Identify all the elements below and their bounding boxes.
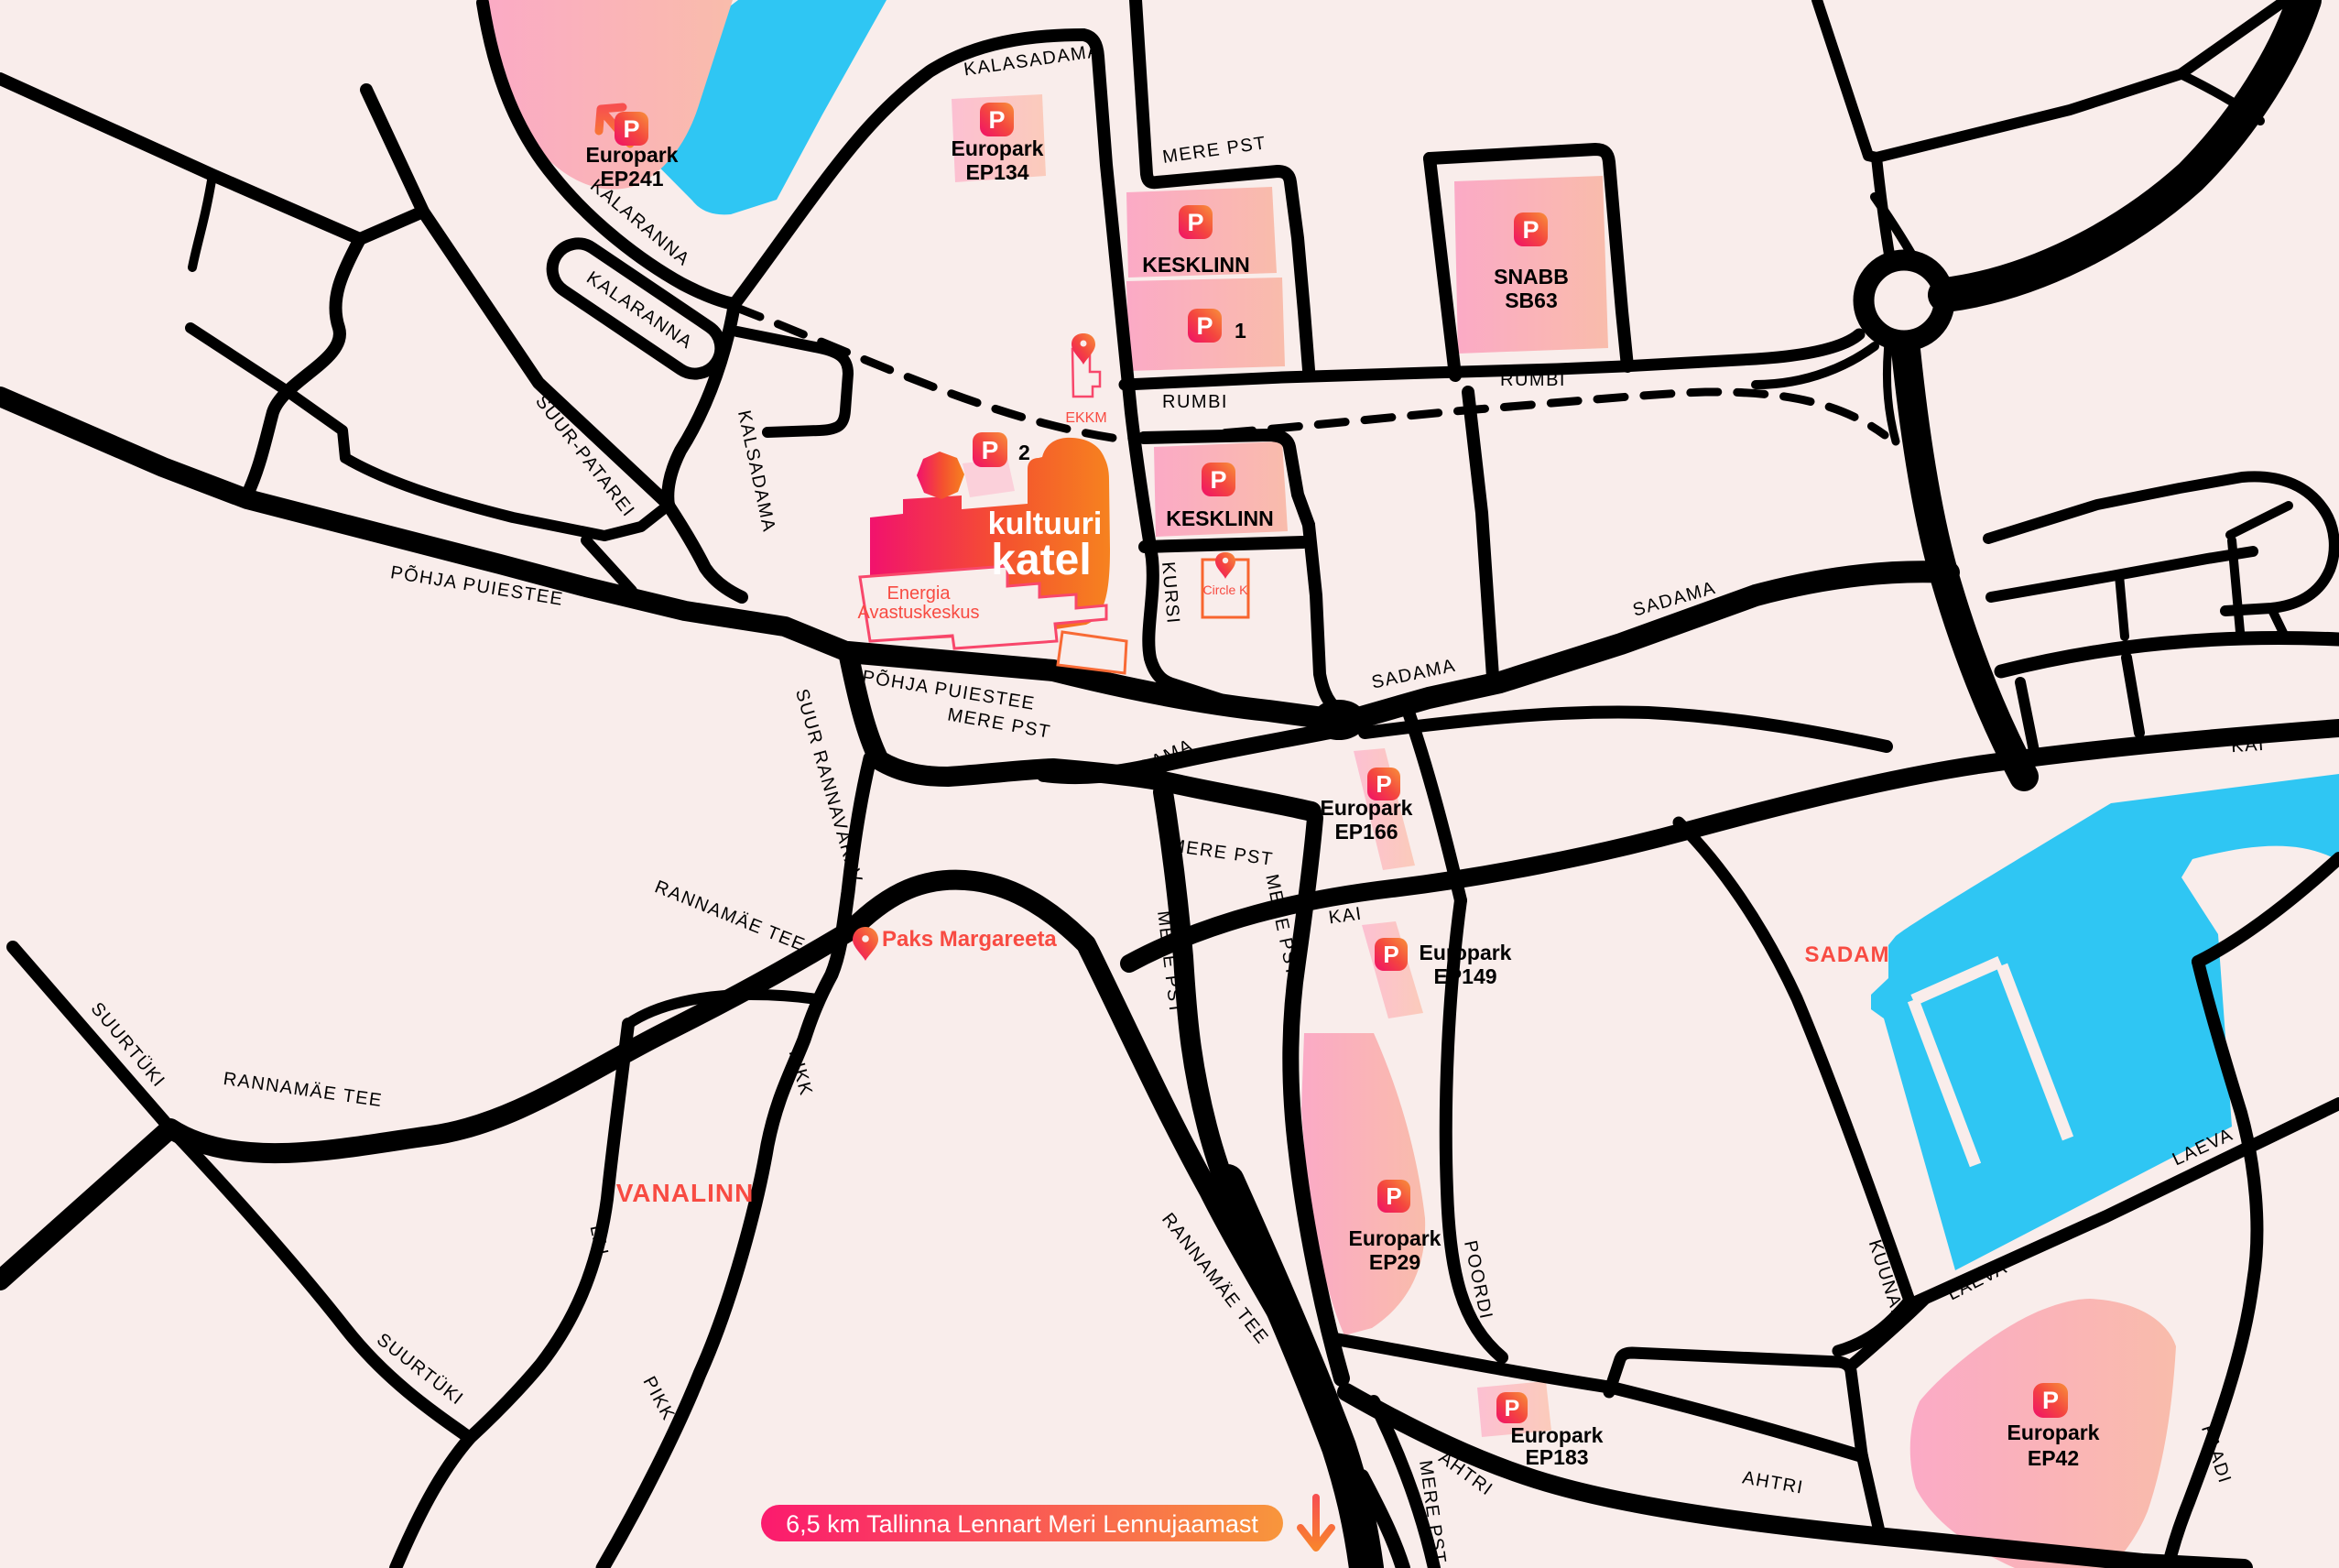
svg-text:SNABB: SNABB: [1494, 265, 1569, 289]
svg-text:RUMBI: RUMBI: [1162, 392, 1228, 412]
svg-text:2: 2: [1018, 441, 1030, 464]
svg-text:EP134: EP134: [965, 160, 1028, 184]
svg-text:EP42: EP42: [2028, 1446, 2079, 1470]
svg-text:P: P: [1376, 770, 1391, 798]
svg-text:EP149: EP149: [1433, 964, 1496, 988]
svg-text:P: P: [988, 106, 1005, 134]
svg-text:Circle K: Circle K: [1202, 583, 1248, 597]
svg-text:VANALINN: VANALINN: [616, 1179, 755, 1207]
svg-text:KESKLINN: KESKLINN: [1166, 506, 1274, 530]
svg-text:Europark: Europark: [2007, 1421, 2100, 1444]
svg-text:Europark: Europark: [952, 136, 1044, 160]
svg-text:KESKLINN: KESKLINN: [1142, 253, 1250, 277]
svg-text:EP166: EP166: [1334, 820, 1398, 844]
svg-text:P: P: [1196, 312, 1213, 340]
svg-text:SB63: SB63: [1505, 289, 1558, 312]
svg-text:KAI: KAI: [2230, 735, 2265, 757]
svg-text:P: P: [1505, 1396, 1520, 1421]
svg-text:Europark: Europark: [1420, 941, 1512, 964]
svg-text:EP183: EP183: [1525, 1445, 1588, 1469]
svg-text:Energia: Energia: [887, 583, 952, 604]
svg-text:6,5 km Tallinna Lennart Meri L: 6,5 km Tallinna Lennart Meri Lennujaamas…: [786, 1510, 1258, 1538]
svg-text:EP29: EP29: [1369, 1250, 1420, 1274]
svg-text:P: P: [623, 115, 639, 143]
svg-text:P: P: [982, 436, 999, 464]
svg-text:SADAM: SADAM: [1805, 942, 1890, 967]
svg-text:EKKM: EKKM: [1065, 410, 1106, 426]
svg-text:Paks Margareeta: Paks Margareeta: [882, 927, 1057, 952]
svg-text:P: P: [1187, 209, 1203, 236]
svg-text:1: 1: [1235, 319, 1246, 343]
svg-text:P: P: [1386, 1182, 1401, 1210]
svg-text:Avastuskeskus: Avastuskeskus: [857, 603, 979, 623]
svg-text:Europark: Europark: [1349, 1226, 1441, 1250]
svg-text:Europark: Europark: [1321, 796, 1413, 820]
svg-text:P: P: [1383, 941, 1398, 968]
svg-text:katel: katel: [991, 536, 1091, 584]
svg-text:P: P: [2042, 1387, 2059, 1414]
svg-text:Europark: Europark: [1511, 1423, 1604, 1447]
svg-text:P: P: [1522, 216, 1539, 244]
svg-text:P: P: [1210, 466, 1226, 494]
svg-text:Europark: Europark: [586, 143, 679, 167]
svg-text:RUMBI: RUMBI: [1500, 370, 1566, 390]
